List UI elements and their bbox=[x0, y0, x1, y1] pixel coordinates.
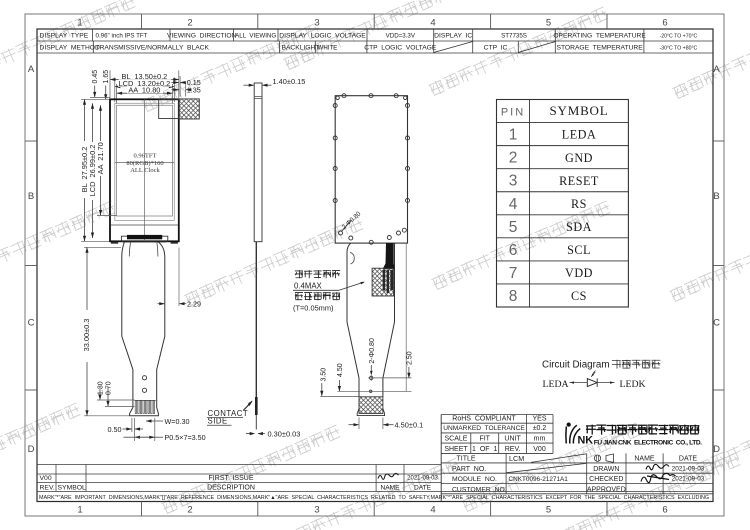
svg-text:1: 1 bbox=[509, 127, 518, 144]
svg-text:SYMBOL: SYMBOL bbox=[550, 103, 609, 118]
svg-text:C: C bbox=[713, 318, 720, 329]
svg-text:3: 3 bbox=[314, 18, 319, 29]
svg-text:0.30±0.03: 0.30±0.03 bbox=[268, 430, 301, 439]
svg-text:0.45: 0.45 bbox=[92, 70, 99, 84]
svg-text:LEDA: LEDA bbox=[562, 128, 597, 142]
svg-text:SYMBOL: SYMBOL bbox=[58, 484, 87, 491]
svg-text:0.96" inch IPS TFT: 0.96" inch IPS TFT bbox=[96, 33, 148, 40]
svg-text:0.96TFT: 0.96TFT bbox=[134, 152, 157, 159]
svg-text:3: 3 bbox=[314, 505, 319, 516]
svg-text:NAME: NAME bbox=[380, 484, 400, 491]
svg-text:W=0.30: W=0.30 bbox=[165, 417, 190, 426]
svg-text:AA 21.70: AA 21.70 bbox=[96, 142, 105, 174]
svg-text:D: D bbox=[28, 444, 35, 455]
svg-text:80(RGB)*160: 80(RGB)*160 bbox=[126, 160, 163, 167]
svg-text:6: 6 bbox=[662, 18, 667, 29]
svg-text:4.50±0.1: 4.50±0.1 bbox=[395, 421, 424, 430]
svg-text:ALL Clock: ALL Clock bbox=[130, 167, 160, 174]
svg-text:UNIT: UNIT bbox=[504, 436, 521, 443]
svg-text:STORAGE TEMPERATURE: STORAGE TEMPERATURE bbox=[556, 45, 643, 52]
svg-text:2: 2 bbox=[187, 505, 192, 516]
svg-text:CNKT0096-21271A1: CNKT0096-21271A1 bbox=[509, 476, 569, 483]
svg-text:VIEWING DIRECTION: VIEWING DIRECTION bbox=[167, 33, 237, 40]
svg-text:4: 4 bbox=[430, 505, 435, 516]
svg-text:A: A bbox=[713, 64, 720, 75]
svg-text:UNMARKED TOLERANCE: UNMARKED TOLERANCE bbox=[443, 425, 525, 432]
svg-text:ST7735S: ST7735S bbox=[501, 33, 527, 40]
svg-text:3: 3 bbox=[509, 173, 518, 190]
svg-text:DATE: DATE bbox=[414, 484, 432, 491]
svg-text:PART NO.: PART NO. bbox=[452, 466, 486, 473]
svg-text:C: C bbox=[28, 318, 35, 329]
svg-text:1.40±0.15: 1.40±0.15 bbox=[273, 77, 306, 86]
svg-text:1: 1 bbox=[77, 505, 82, 516]
svg-text:7: 7 bbox=[509, 265, 518, 282]
svg-text:2: 2 bbox=[187, 18, 192, 29]
svg-text:CS: CS bbox=[571, 289, 587, 303]
svg-text:2021-09-03: 2021-09-03 bbox=[407, 476, 438, 482]
svg-text:LEDK: LEDK bbox=[620, 379, 646, 390]
svg-text:AA 10.80: AA 10.80 bbox=[128, 86, 160, 95]
svg-text:YES: YES bbox=[532, 416, 546, 423]
svg-text:RESET: RESET bbox=[559, 174, 599, 188]
svg-text:TRANSMISSIVE/NORMALLY BLACK: TRANSMISSIVE/NORMALLY BLACK bbox=[96, 45, 210, 52]
svg-text:RoHS COMPLIANT: RoHS COMPLIANT bbox=[452, 416, 516, 423]
svg-text:MODULE NO.: MODULE NO. bbox=[452, 476, 497, 483]
svg-text:2.50: 2.50 bbox=[407, 351, 414, 365]
svg-text:FU JIAN CNK ELECTRONIC CO.,: FU JIAN CNK ELECTRONIC CO., LTD. bbox=[594, 439, 702, 446]
svg-text:VDD: VDD bbox=[565, 266, 593, 280]
svg-text:6: 6 bbox=[662, 505, 667, 516]
svg-text:2021-09-03: 2021-09-03 bbox=[672, 476, 705, 483]
svg-text:Circuit Diagram: Circuit Diagram bbox=[542, 360, 610, 371]
svg-text:0.4MAX: 0.4MAX bbox=[294, 281, 323, 290]
svg-text:ALL VIEWING: ALL VIEWING bbox=[235, 33, 276, 40]
svg-text:LCM: LCM bbox=[509, 454, 524, 463]
svg-text:DATE: DATE bbox=[679, 456, 697, 463]
svg-text:RS: RS bbox=[571, 197, 587, 211]
svg-text:V00: V00 bbox=[533, 446, 546, 453]
svg-text:WHITE: WHITE bbox=[318, 45, 338, 52]
svg-text:V00: V00 bbox=[40, 475, 52, 482]
svg-text:0.50: 0.50 bbox=[108, 425, 122, 434]
svg-text:4.50: 4.50 bbox=[337, 363, 344, 377]
svg-text:SHEET: SHEET bbox=[444, 446, 468, 453]
svg-text:PIN: PIN bbox=[501, 107, 525, 119]
svg-text:0.70: 0.70 bbox=[106, 381, 113, 395]
svg-text:D: D bbox=[713, 444, 720, 455]
svg-text:-30°C TO +80°C: -30°C TO +80°C bbox=[659, 45, 697, 51]
svg-text:33.00±0.3: 33.00±0.3 bbox=[82, 319, 91, 352]
svg-text:VDD=3.3V: VDD=3.3V bbox=[386, 33, 416, 40]
svg-text:CUSTOMER NO.: CUSTOMER NO. bbox=[452, 486, 507, 493]
svg-text:(T=0.05mm): (T=0.05mm) bbox=[293, 303, 333, 312]
svg-text:NAME: NAME bbox=[634, 456, 655, 463]
svg-text:2.29: 2.29 bbox=[187, 300, 201, 309]
svg-text:2-Φ0.80: 2-Φ0.80 bbox=[369, 338, 376, 364]
svg-text:MARK"*"ARE IMPORTANT DIMENSI: MARK"*"ARE IMPORTANT DIMENSIONS,MARK"[]"… bbox=[39, 495, 709, 501]
svg-text:3.50: 3.50 bbox=[320, 368, 327, 382]
svg-text:2: 2 bbox=[509, 150, 518, 167]
svg-text:CTP IC: CTP IC bbox=[484, 45, 508, 52]
svg-text:NK: NK bbox=[578, 435, 594, 447]
svg-text:4: 4 bbox=[430, 18, 435, 29]
svg-text:DISPLAY TYPE: DISPLAY TYPE bbox=[40, 33, 89, 40]
svg-text:FIT: FIT bbox=[479, 436, 490, 443]
svg-text:1.65: 1.65 bbox=[103, 70, 110, 84]
svg-text:APPROVED: APPROVED bbox=[587, 486, 626, 493]
svg-text:TITLE: TITLE bbox=[456, 456, 475, 463]
svg-text:1.35: 1.35 bbox=[187, 86, 201, 95]
svg-text:5: 5 bbox=[546, 505, 551, 516]
svg-text:6: 6 bbox=[509, 242, 518, 259]
svg-text:±0.2: ±0.2 bbox=[533, 425, 547, 432]
svg-text:2021-09-03: 2021-09-03 bbox=[672, 465, 705, 472]
svg-text:P0.5×7=3.50: P0.5×7=3.50 bbox=[165, 433, 206, 442]
svg-text:DISPLAY METHOD: DISPLAY METHOD bbox=[40, 45, 100, 52]
svg-text:A: A bbox=[28, 64, 35, 75]
svg-text:CHECKED: CHECKED bbox=[589, 476, 623, 483]
svg-text:FIRST ISSUE: FIRST ISSUE bbox=[209, 475, 254, 482]
svg-text:GND: GND bbox=[565, 151, 593, 165]
svg-text:SCL: SCL bbox=[567, 243, 591, 257]
svg-text:5: 5 bbox=[546, 18, 551, 29]
svg-text:REV.: REV. bbox=[505, 446, 521, 453]
svg-text:OPERATING TEMPERATURE: OPERATING TEMPERATURE bbox=[553, 33, 646, 40]
svg-text:1: 1 bbox=[77, 18, 82, 29]
svg-text:SCALE: SCALE bbox=[445, 436, 468, 443]
svg-text:LEDA: LEDA bbox=[543, 379, 569, 390]
svg-text:DISPLAY LOGIC VOLTAGE: DISPLAY LOGIC VOLTAGE bbox=[279, 33, 366, 40]
svg-text:DISPLAY IC: DISPLAY IC bbox=[434, 33, 472, 40]
svg-text:5: 5 bbox=[509, 219, 518, 236]
svg-text:1 OF 1: 1 OF 1 bbox=[472, 446, 497, 453]
svg-text:DRAWN: DRAWN bbox=[593, 466, 619, 473]
svg-text:8: 8 bbox=[509, 288, 518, 305]
svg-text:DESCRIPTION: DESCRIPTION bbox=[207, 484, 255, 491]
svg-text:-20°C TO +70°C: -20°C TO +70°C bbox=[659, 33, 697, 39]
svg-text:mm: mm bbox=[534, 436, 546, 443]
svg-text:4: 4 bbox=[509, 196, 518, 213]
svg-text:SDA: SDA bbox=[566, 220, 592, 234]
svg-text:1.30: 1.30 bbox=[98, 381, 105, 395]
svg-text:CTP LOGIC VOLTAGE: CTP LOGIC VOLTAGE bbox=[364, 45, 437, 52]
svg-text:BACKLIGHT: BACKLIGHT bbox=[282, 45, 320, 52]
svg-text:B: B bbox=[28, 191, 34, 202]
svg-text:B: B bbox=[713, 191, 719, 202]
svg-text:REV.: REV. bbox=[40, 484, 55, 491]
